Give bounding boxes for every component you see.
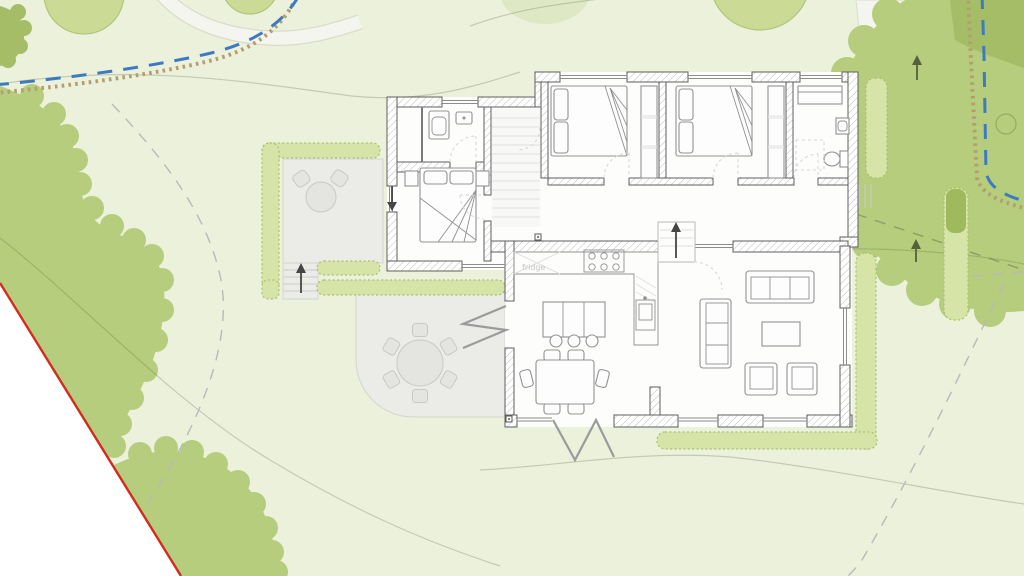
site-plan-canvas: fridge [0,0,1024,576]
hedge-below-steps [262,280,279,299]
pillow [450,171,473,184]
hedge-right-of-bathroom [866,78,887,178]
nightstand [405,171,418,186]
chair [544,350,560,361]
hedge-patio-left [262,143,279,291]
nightstand [476,171,489,186]
pillow [679,122,693,153]
sofa-three-seat [746,271,814,303]
pillow [424,171,447,184]
pillow [679,89,693,120]
hedge-strip-b [317,280,505,295]
stool [568,335,580,347]
stool [550,335,562,347]
toilet [824,151,848,167]
armchair [745,363,777,395]
chair [568,350,584,361]
chair [568,403,584,414]
coffee-table [762,322,800,346]
vanity-counter [798,86,842,104]
chair [544,403,560,414]
pillow [554,122,568,153]
wardrobe [641,86,657,178]
pillow [554,89,568,120]
hedge-south-horizontal [657,432,877,449]
hedge-patio-top [262,143,380,158]
fridge-label: fridge [522,263,545,272]
hedge-far-east-dark [946,189,966,233]
armchair [787,363,817,395]
staircase [492,109,540,227]
wardrobe [768,86,784,178]
dining-table [536,360,594,404]
hedge-strip-a [317,261,380,275]
hedge-east-vertical [856,253,876,449]
entry-vestibule [658,222,695,262]
architectural-site-plan: fridge [0,0,1024,576]
kitchen-island [543,302,605,347]
stool [586,335,598,347]
sofa-two-seat [700,299,731,368]
